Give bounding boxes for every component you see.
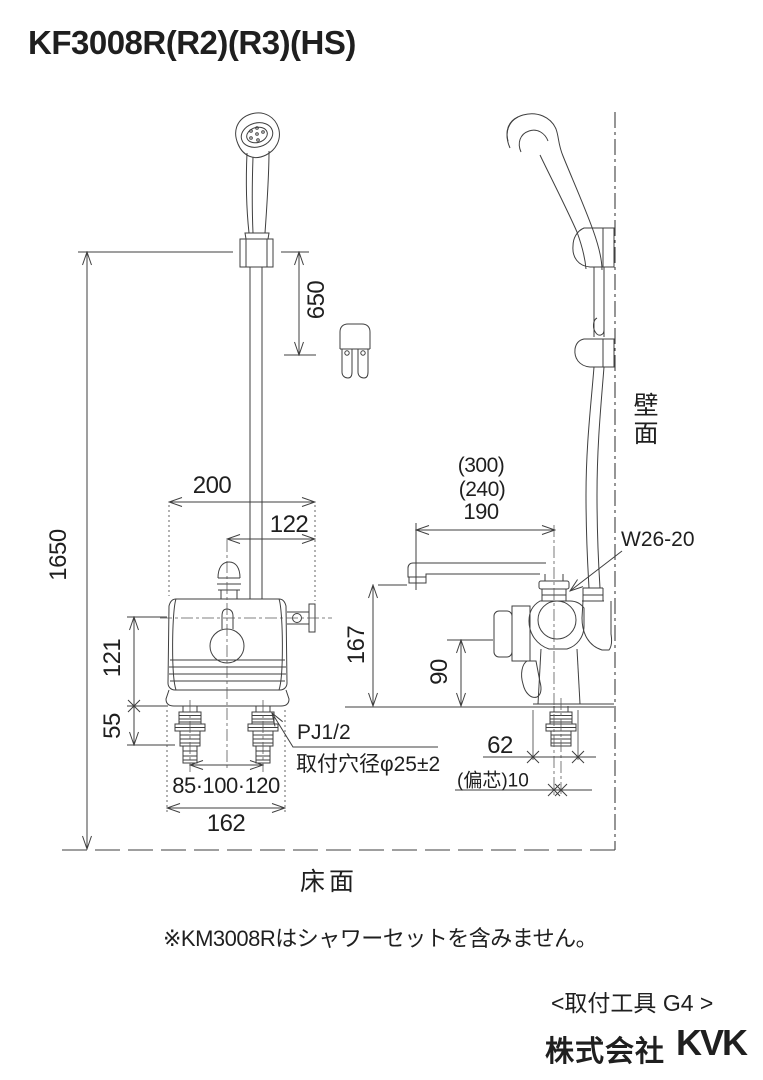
company-name: 株式会社 (545, 1028, 665, 1070)
dim-300-label: (300) (458, 454, 505, 478)
wall-surface-label: 壁面 (626, 392, 662, 448)
faucet-body-front (166, 562, 315, 763)
w26-leader-line (570, 551, 622, 591)
shower-hanger-hook-icon (340, 324, 370, 378)
eccentric-dim-label: (偏芯)10 (457, 766, 529, 793)
handle-stem (222, 609, 233, 629)
dim-pitch-label: 85·100·120 (172, 773, 280, 799)
hose-elbow-side (582, 588, 612, 650)
dim-167-label: 167 (343, 626, 371, 665)
w26-thread-label: W26-20 (621, 528, 695, 552)
center-lines-side (554, 525, 561, 795)
shower-head-side-icon (507, 114, 602, 270)
slide-bar-side (573, 228, 614, 588)
dim-90-label: 90 (426, 659, 454, 685)
dim-650-label: 650 (303, 281, 331, 320)
faucet-body-side (345, 563, 614, 746)
technical-drawing-page: KF3008R(R2)(R3)(HS) 1650 650 200 122 121… (0, 0, 763, 1080)
lever-handle-side (494, 611, 512, 657)
dim-122-label: 122 (270, 511, 309, 539)
dim-55-label: 55 (99, 713, 127, 739)
mounting-hole-label: 取付穴径φ25±2 (296, 748, 440, 778)
dim-190-label: 190 (463, 499, 498, 525)
page-title: KF3008R(R2)(R3)(HS) (28, 24, 356, 62)
dim-121-label: 121 (99, 639, 127, 678)
pj-thread-label: PJ1/2 (297, 721, 351, 745)
dim-200-label: 200 (193, 472, 232, 500)
dim-62-label: 62 (487, 732, 513, 760)
shower-set-note: ※KM3008Rはシャワーセットを含みません。 (163, 921, 597, 953)
dim-162-label: 162 (207, 810, 246, 838)
kvk-logo: KVK (676, 1022, 746, 1064)
mounting-tool-label: <取付工具 G4 > (551, 984, 713, 1018)
dim-1650-label: 1650 (45, 529, 73, 580)
floor-surface-label: 床面 (300, 862, 358, 898)
spout-side (408, 563, 546, 577)
